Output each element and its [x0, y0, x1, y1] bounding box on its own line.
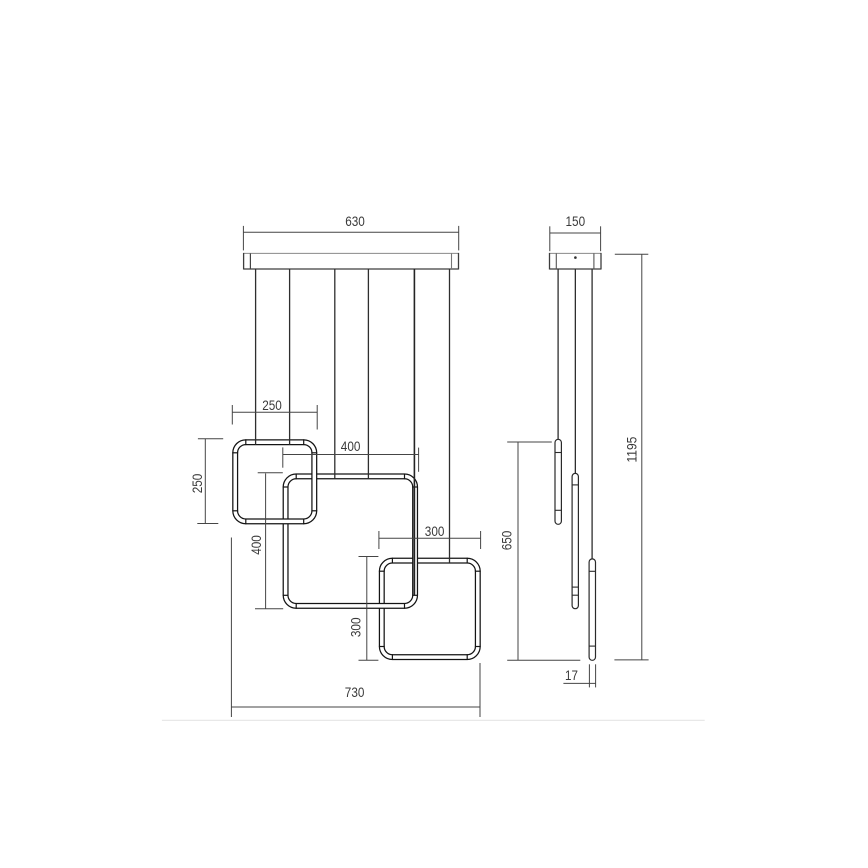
svg-text:250: 250: [262, 397, 282, 413]
svg-text:1195: 1195: [624, 437, 640, 463]
svg-text:300: 300: [425, 523, 445, 539]
svg-text:400: 400: [341, 438, 361, 454]
svg-text:300: 300: [348, 617, 364, 637]
svg-text:250: 250: [189, 474, 205, 494]
svg-text:400: 400: [248, 535, 264, 555]
svg-text:630: 630: [345, 213, 365, 229]
svg-text:150: 150: [566, 213, 586, 229]
svg-text:17: 17: [565, 667, 578, 683]
svg-text:730: 730: [345, 684, 365, 700]
svg-text:650: 650: [498, 531, 514, 551]
